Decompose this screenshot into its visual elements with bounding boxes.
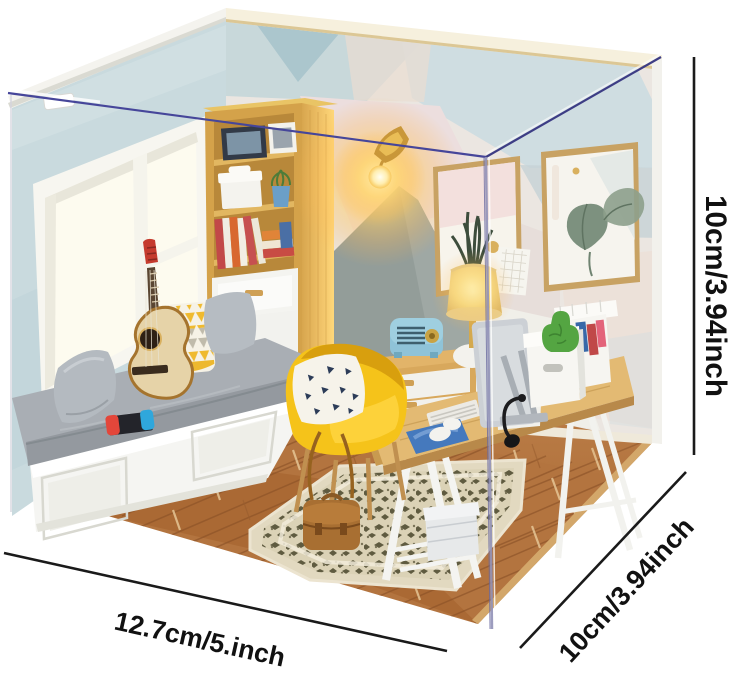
svg-text:10cm/3.94inch: 10cm/3.94inch <box>699 195 732 397</box>
